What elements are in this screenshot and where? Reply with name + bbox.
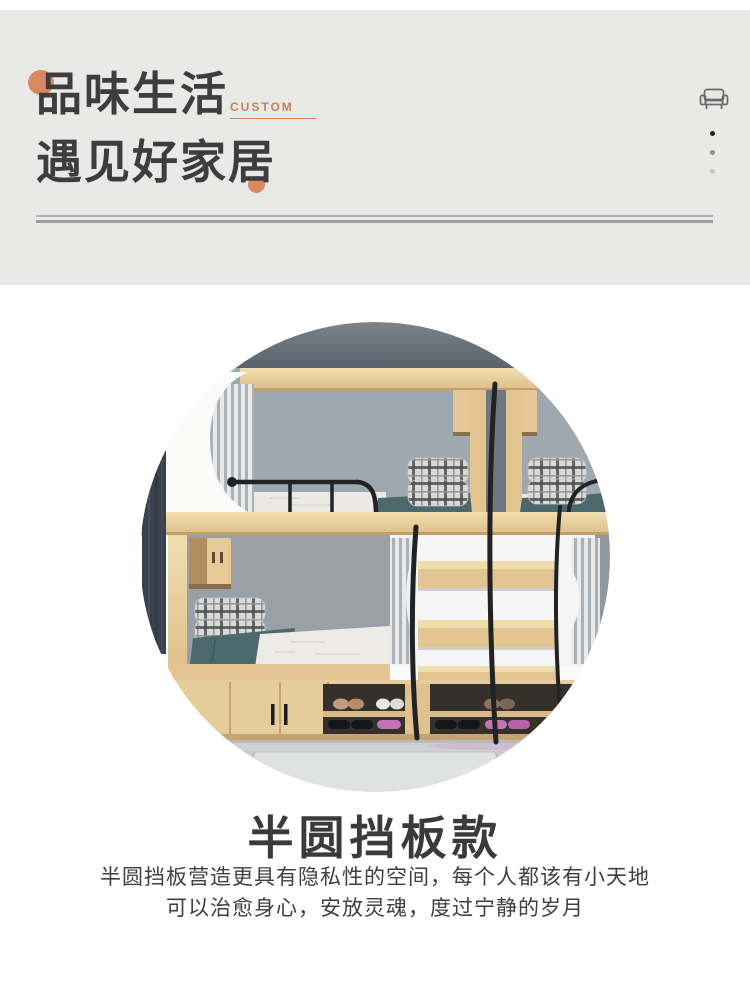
dot-1 (710, 131, 715, 136)
lower-bed-rail (168, 664, 390, 680)
middle-wood-beam (140, 512, 610, 535)
custom-label: CUSTOM (230, 100, 316, 119)
shoe-shelf (323, 684, 610, 734)
section-description-line2: 可以治愈身心，安放灵魂，度过宁静的岁月 (0, 893, 750, 924)
section-description-line1: 半圆挡板营造更具有隐私性的空间，每个人都该有小天地 (0, 862, 750, 893)
section-description: 半圆挡板营造更具有隐私性的空间，每个人都该有小天地 可以治愈身心，安放灵魂，度过… (0, 862, 750, 924)
upper-mattress (254, 492, 386, 512)
brand-title-line2: 遇见好家居 (36, 136, 276, 188)
divider-double-line (36, 215, 713, 223)
upper-plaid-quilt (408, 458, 468, 506)
marble-floor (140, 740, 610, 792)
cabinet-handle (271, 704, 275, 725)
top-wood-beam (240, 368, 610, 390)
brand-title-line1: 品味生活 (36, 68, 228, 120)
cabinet-handle (284, 704, 288, 725)
bunk-bed-photo (140, 322, 610, 792)
lower-left-post (168, 535, 187, 680)
sofa-icon (699, 88, 729, 112)
pagination-dots (710, 131, 718, 188)
divider-line-thick (36, 220, 713, 223)
section-heading: 半圆挡板款 (0, 802, 750, 868)
wall-dark-top (140, 322, 610, 372)
brand-header: 品味生活 CUSTOM 遇见好家居 (0, 10, 750, 285)
page: 品味生活 CUSTOM 遇见好家居 (0, 0, 750, 1002)
lower-cabinet (189, 538, 231, 589)
product-photo-circle (140, 322, 610, 792)
dot-3 (710, 169, 715, 174)
dot-2 (710, 150, 715, 155)
divider-line-thin (36, 215, 713, 217)
left-curtain-wedge (142, 450, 166, 654)
